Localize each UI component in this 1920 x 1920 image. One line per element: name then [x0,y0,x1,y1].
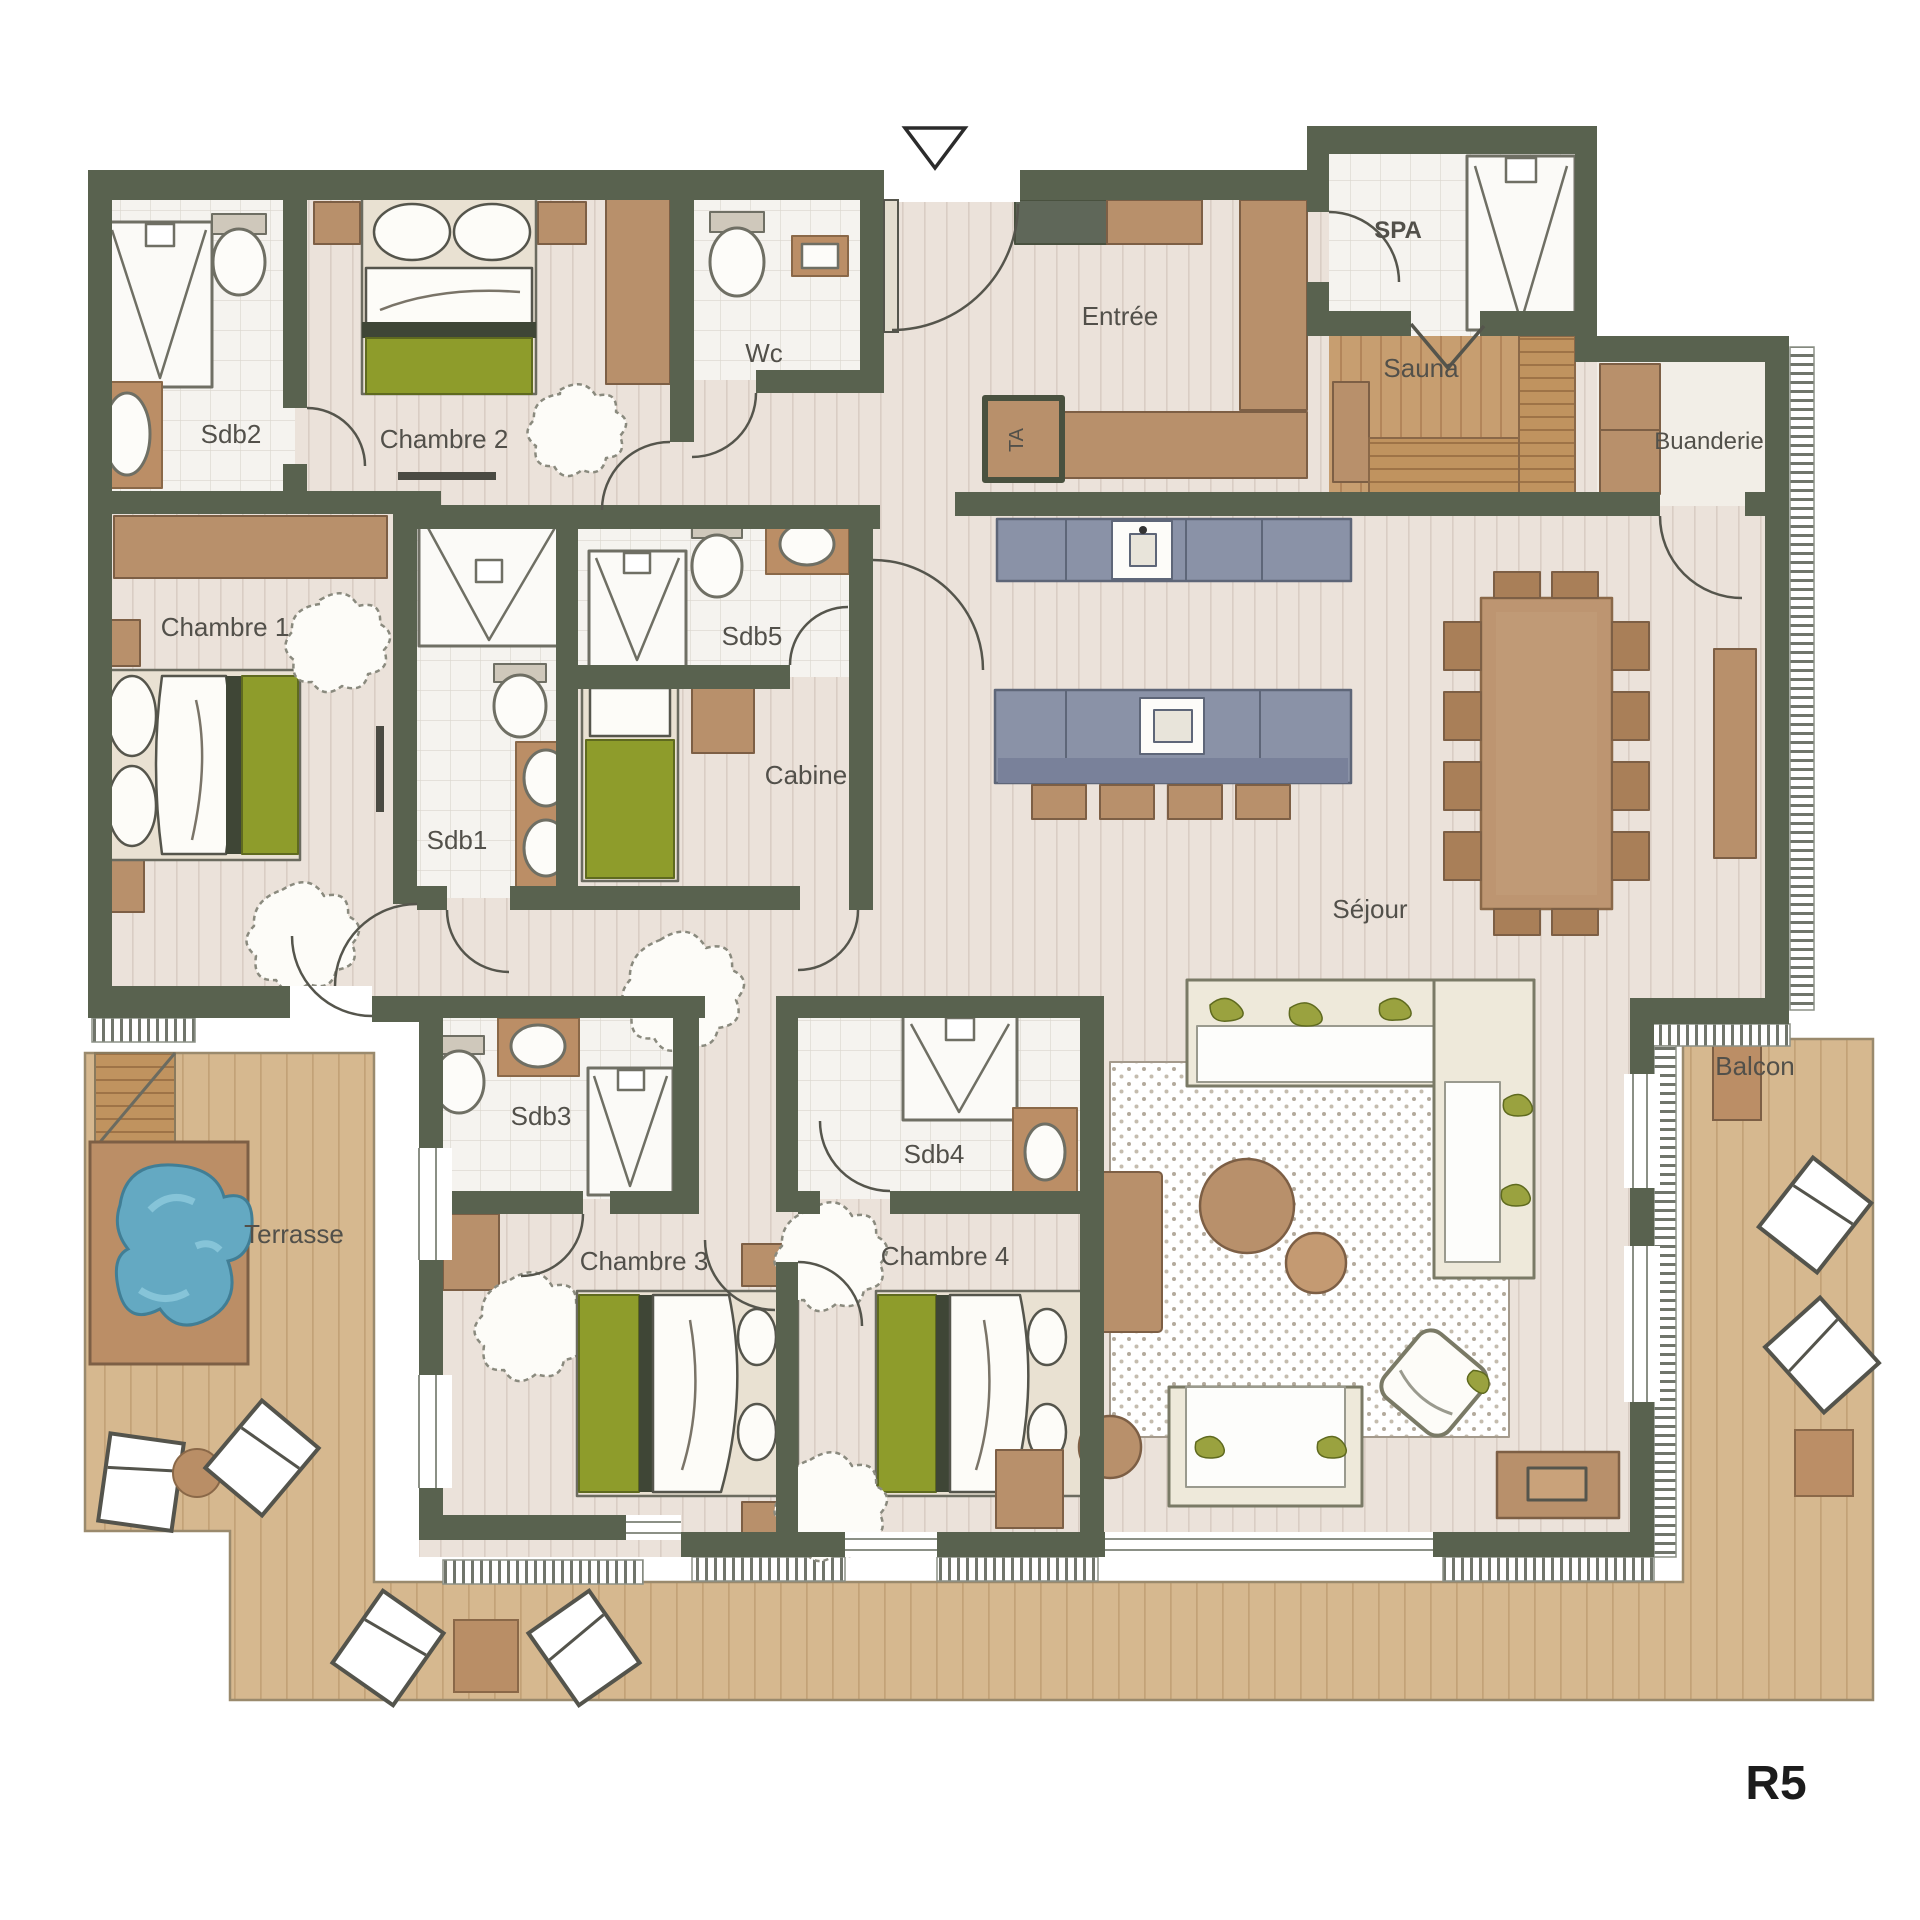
svg-text:R5: R5 [1745,1757,1806,1810]
svg-text:SPA: SPA [1374,217,1422,244]
svg-text:Terrasse: Terrasse [244,1219,344,1249]
svg-text:Buanderie: Buanderie [1654,428,1763,455]
svg-text:Wc: Wc [745,338,783,368]
svg-text:Chambre 4: Chambre 4 [881,1241,1010,1271]
svg-text:Chambre 3: Chambre 3 [580,1246,709,1276]
svg-text:Sdb5: Sdb5 [722,621,783,651]
svg-text:Chambre 2: Chambre 2 [380,424,509,454]
svg-text:Cabine: Cabine [765,760,847,790]
svg-text:Sauna: Sauna [1383,353,1459,383]
svg-text:TA: TA [1006,427,1028,452]
svg-text:Entrée: Entrée [1082,301,1159,331]
svg-text:Sdb2: Sdb2 [201,419,262,449]
svg-text:Balcon: Balcon [1715,1051,1795,1081]
svg-text:Chambre 1: Chambre 1 [161,612,290,642]
svg-text:Sdb4: Sdb4 [904,1139,965,1169]
svg-text:Séjour: Séjour [1332,894,1407,924]
svg-text:Sdb1: Sdb1 [427,825,488,855]
svg-text:Sdb3: Sdb3 [511,1101,572,1131]
